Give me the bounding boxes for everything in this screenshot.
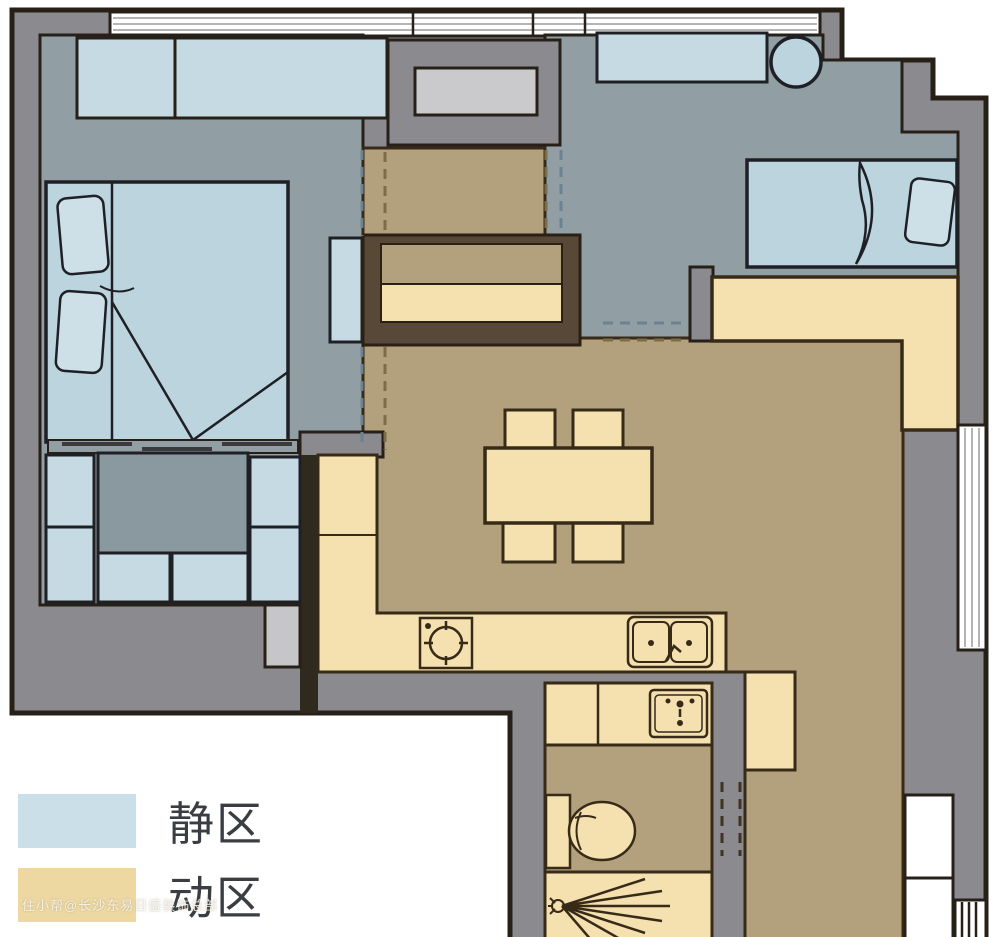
- balcony-window-icon: [958, 425, 986, 650]
- chair-icon: [573, 410, 623, 450]
- right-window-hatch: [955, 900, 986, 937]
- stool-icon: [771, 37, 821, 87]
- pillow-icon: [57, 195, 109, 275]
- door-icon: [330, 238, 362, 342]
- legend-item-quiet-zone: 静区: [18, 788, 264, 854]
- pillow-icon: [55, 290, 106, 373]
- balcony-door-icon: [905, 795, 953, 937]
- kitchen-side-wall: [300, 455, 318, 713]
- double-bed-icon: [46, 182, 288, 442]
- desk-icon: [597, 33, 767, 82]
- chair-icon: [503, 521, 555, 562]
- utility-cabinet: [415, 68, 537, 115]
- structural-column: [265, 605, 300, 667]
- watermark: 住小帮@长沙东易日盛装饰总部: [22, 895, 218, 914]
- sink-icon: [628, 617, 712, 667]
- quiet-zone-swatch: [18, 794, 136, 848]
- sliding-door-track: [48, 440, 298, 453]
- shower-icon: [545, 872, 712, 937]
- washbasin-icon: [545, 683, 712, 745]
- chair-icon: [573, 521, 623, 562]
- hall-cabinet: [745, 672, 795, 770]
- stove-icon: [420, 618, 472, 668]
- floor-plan-screenshot: 静区 动区 住小帮@长沙东易日盛装饰总部: [0, 0, 1000, 937]
- pillow-icon: [904, 178, 955, 247]
- entry-shoe-cabinet: [363, 235, 580, 345]
- wardrobe: [175, 38, 387, 118]
- single-bed-icon: [747, 160, 957, 267]
- dining-table-icon: [485, 448, 652, 523]
- wardrobe: [77, 38, 175, 118]
- quiet-zone-label: 静区: [168, 788, 264, 854]
- tatami-storage-icon: [46, 453, 300, 602]
- chair-icon: [505, 410, 555, 450]
